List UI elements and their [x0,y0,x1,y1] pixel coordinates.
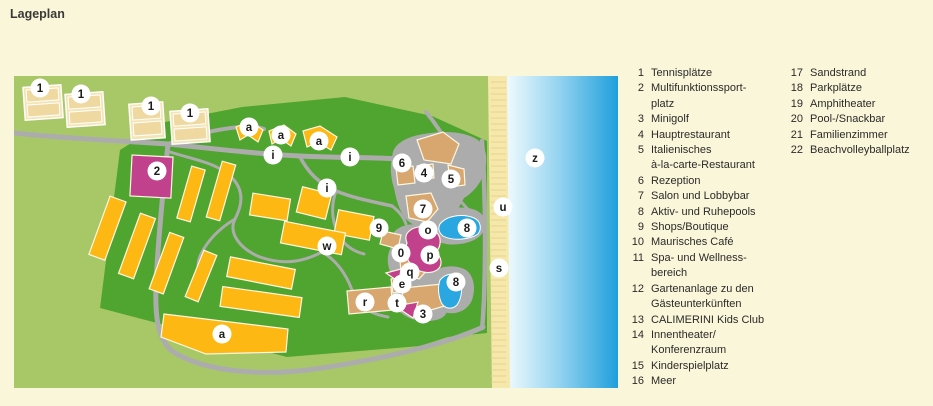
legend-item-6: 6Rezeption [627,174,777,189]
map-marker-a: a [272,126,291,145]
legend-item-label: Familienzimmer [810,128,888,143]
legend-item-20: 20Pool-/Snackbar [786,112,926,127]
map-marker-i: i [264,146,283,165]
legend-item-8: 8Aktiv- und Ruhepools [627,205,777,220]
legend-item-5: 5Italienisches à-la-carte-Restaurant [627,143,777,174]
map-marker-a: a [310,132,329,151]
legend-item-number: 15 [627,359,644,374]
legend-item-2: 2Multifunktionssport- platz [627,81,777,112]
map-marker-1: 1 [31,79,50,98]
legend-item-10: 10Maurisches Café [627,235,777,250]
map-marker-p: p [421,246,440,265]
map-marker-u: u [494,198,513,217]
svg-text:i: i [325,183,328,195]
map-marker-w: w [318,237,337,256]
legend-item-22: 22Beachvolleyballplatz [786,143,926,158]
map-marker-9: 9 [370,219,389,238]
svg-text:a: a [316,136,323,148]
legend-item-number: 7 [627,189,644,204]
legend-item-label: Salon und Lobbybar [651,189,749,204]
page-title: Lageplan [10,7,65,21]
legend-item-number: 9 [627,220,644,235]
legend-item-label: Pool-/Snackbar [810,112,885,127]
legend-column-1: 1Tennisplätze2Multifunktionssport- platz… [627,66,777,390]
legend-item-label: CALIMERINI Kids Club [651,313,764,328]
svg-text:a: a [219,329,226,341]
map-marker-6: 6 [393,154,412,173]
svg-text:a: a [246,122,253,134]
svg-text:8: 8 [453,277,460,289]
map-marker-z: z [526,149,545,168]
legend-item-label: Minigolf [651,112,689,127]
legend-item-number: 11 [627,251,644,266]
legend-item-label: Amphitheater [810,97,875,112]
map-marker-i: i [341,148,360,167]
map-marker-0: 0 [392,244,411,263]
svg-text:8: 8 [464,223,471,235]
svg-text:a: a [278,130,285,142]
svg-text:4: 4 [421,168,428,180]
legend-item-label: Aktiv- und Ruhepools [651,205,756,220]
legend-item-number: 6 [627,174,644,189]
legend-item-label: Innentheater/ Konferenzraum [651,328,726,359]
sea [505,76,618,388]
legend-item-label: Italienisches à-la-carte-Restaurant [651,143,755,174]
legend-item-label: Parkplätze [810,81,862,96]
legend-item-number: 21 [786,128,803,143]
legend-item-number: 10 [627,235,644,250]
legend-item-14: 14Innentheater/ Konferenzraum [627,328,777,359]
legend-item-label: Sandstrand [810,66,866,81]
legend-item-label: Kinderspielplatz [651,359,729,374]
legend-item-18: 18Parkplätze [786,81,926,96]
svg-text:r: r [363,297,368,309]
legend-item-17: 17Sandstrand [786,66,926,81]
legend-item-label: Shops/Boutique [651,220,729,235]
map-marker-t: t [388,294,407,313]
svg-text:o: o [424,225,431,237]
map-marker-3: 3 [414,305,433,324]
map-marker-s: s [490,259,509,278]
legend-item-label: Maurisches Café [651,235,734,250]
legend-item-1: 1Tennisplätze [627,66,777,81]
legend-item-19: 19Amphitheater [786,97,926,112]
legend-item-label: Tennisplätze [651,66,712,81]
legend-item-15: 15Kinderspielplatz [627,359,777,374]
legend-item-number: 5 [627,143,644,158]
svg-text:w: w [322,241,332,253]
legend-item-number: 18 [786,81,803,96]
map-marker-1: 1 [72,85,91,104]
svg-text:7: 7 [420,204,426,216]
svg-text:t: t [395,298,399,310]
map-marker-2: 2 [148,162,167,181]
legend-item-number: 14 [627,328,644,343]
legend-item-number: 20 [786,112,803,127]
map-marker-a: a [240,118,259,137]
legend-item-13: 13CALIMERINI Kids Club [627,313,777,328]
svg-text:1: 1 [37,83,44,95]
svg-text:z: z [532,153,538,165]
map-marker-o: o [419,221,438,240]
svg-text:1: 1 [78,89,85,101]
map-marker-7: 7 [414,200,433,219]
svg-text:9: 9 [376,223,382,235]
svg-text:2: 2 [154,166,160,178]
legend-item-label: Multifunktionssport- platz [651,81,746,112]
legend-item-12: 12Gartenanlage zu den Gästeunterkünften [627,282,777,313]
legend-item-number: 13 [627,313,644,328]
map-marker-8: 8 [458,219,477,238]
legend-item-11: 11Spa- und Wellness- bereich [627,251,777,282]
brochure-page: Lageplan [0,0,933,406]
legend-item-label: Rezeption [651,174,701,189]
legend-item-number: 16 [627,374,644,389]
legend-item-number: 17 [786,66,803,81]
legend-item-number: 19 [786,97,803,112]
legend-item-3: 3Minigolf [627,112,777,127]
legend-item-21: 21Familienzimmer [786,128,926,143]
map-marker-5: 5 [442,170,461,189]
map-marker-a: a [213,325,232,344]
svg-text:5: 5 [448,174,455,186]
svg-text:6: 6 [399,158,405,170]
map-marker-1: 1 [142,97,161,116]
legend-item-16: 16Meer [627,374,777,389]
legend-item-9: 9Shops/Boutique [627,220,777,235]
svg-text:i: i [271,150,274,162]
legend-column-2: 17Sandstrand18Parkplätze19Amphitheater20… [786,66,926,158]
legend-item-4: 4Hauptrestaurant [627,128,777,143]
legend-item-label: Meer [651,374,676,389]
svg-text:3: 3 [420,309,426,321]
site-map: 11112aaaiii645798ow0pqe8rt3azus [14,76,618,388]
legend-item-number: 22 [786,143,803,158]
svg-text:p: p [426,250,433,262]
map-marker-1: 1 [181,104,200,123]
legend-item-number: 8 [627,205,644,220]
legend-item-number: 2 [627,81,644,96]
legend-item-label: Hauptrestaurant [651,128,730,143]
map-marker-4: 4 [415,164,434,183]
map-marker-r: r [356,293,375,312]
legend-item-label: Spa- und Wellness- bereich [651,251,747,282]
map-marker-i: i [318,179,337,198]
svg-text:1: 1 [187,108,194,120]
legend-item-7: 7Salon und Lobbybar [627,189,777,204]
svg-text:u: u [499,202,506,214]
map-marker-8: 8 [447,273,466,292]
legend-item-number: 4 [627,128,644,143]
svg-text:1: 1 [148,101,155,113]
legend-item-number: 3 [627,112,644,127]
svg-text:i: i [348,152,351,164]
svg-text:e: e [399,279,405,291]
svg-text:0: 0 [398,248,404,260]
map-marker-e: e [393,275,412,294]
svg-text:s: s [496,263,502,275]
legend-item-number: 12 [627,282,644,297]
legend-item-number: 1 [627,66,644,81]
legend-item-label: Beachvolleyballplatz [810,143,910,158]
legend-item-label: Gartenanlage zu den Gästeunterkünften [651,282,754,313]
